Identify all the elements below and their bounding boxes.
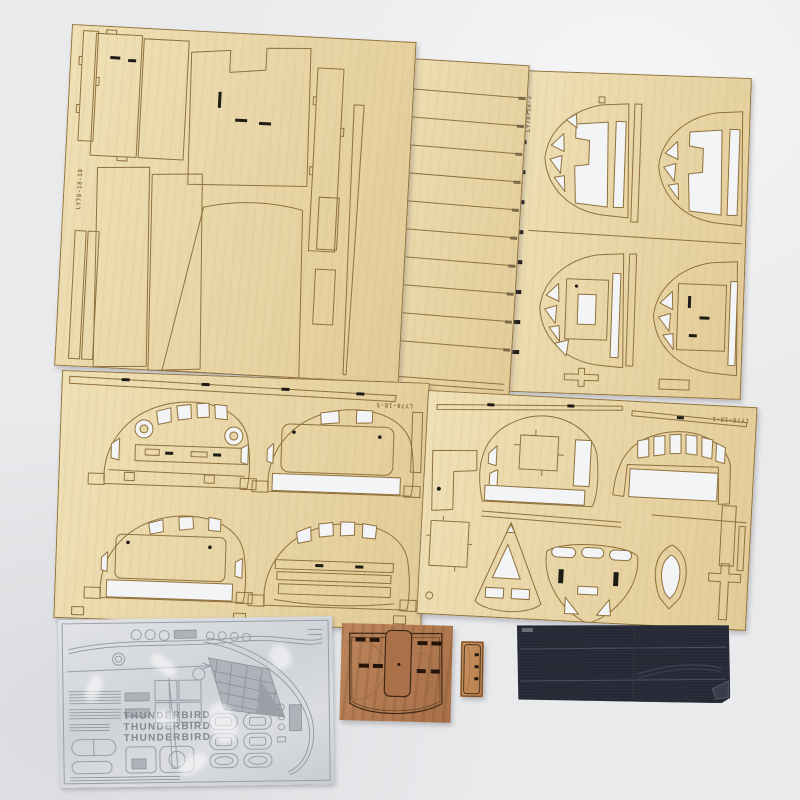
black-sheet-cuts <box>516 623 731 703</box>
small-wood-cuts <box>460 641 484 697</box>
plywood-sheet-body-panels: LY78-18-10 <box>54 24 416 384</box>
hull-former <box>543 542 639 626</box>
dome-former-rails <box>248 519 419 612</box>
former-cuts-right: LY78-18-1 <box>416 390 757 631</box>
rib-frame-framed <box>538 251 627 368</box>
windshield-former <box>613 428 734 505</box>
rib-frame-framed <box>652 259 741 376</box>
dark-wood-cuts <box>339 623 453 723</box>
small-wood-piece <box>460 641 484 697</box>
sheet-code: LY78-18-5 <box>376 401 413 409</box>
rib-frame-open <box>543 95 632 218</box>
rect-panels <box>89 29 315 190</box>
sheet-code: LY78-18-1 <box>712 415 749 424</box>
rib-frame-cuts: LY78-18-2 <box>509 70 752 400</box>
lower-panels <box>87 165 309 379</box>
kit-photo-scene: LY78-18-10 <box>0 0 800 800</box>
big-former <box>478 413 601 507</box>
sprue-bar <box>528 230 742 243</box>
plywood-sheet-formers-left: LY78-18-5 <box>53 370 429 631</box>
dome-former-window <box>252 406 423 497</box>
body-panels-cuts: LY78-18-10 <box>54 24 416 384</box>
sheet-code: LY78-18-10 <box>75 168 84 209</box>
triangle-former <box>475 521 546 613</box>
brand-text: THUNDERBIRD <box>124 732 212 744</box>
teardrop-part <box>653 544 687 610</box>
chrome-decal-sheet: THUNDERBIRD THUNDERBIRD THUNDERBIRD <box>58 616 334 788</box>
plywood-sheet-formers-right: LY78-18-1 <box>416 390 757 631</box>
small-cross-parts <box>564 102 699 390</box>
sheet-mark <box>522 628 533 632</box>
former-cuts-left: LY78-18-5 <box>53 370 429 631</box>
plywood-sheet-rib-frames: LY78-18-2 <box>509 70 752 400</box>
rib-frame-open <box>657 109 746 226</box>
dome-former-window <box>84 513 255 604</box>
black-foam-sheet <box>516 623 731 703</box>
dark-wood-sheet <box>339 623 453 723</box>
curled-corner <box>712 681 728 699</box>
dome-former-circles <box>88 399 259 490</box>
top-spars <box>437 397 747 427</box>
edge-strips <box>64 30 110 359</box>
oval-decals-left <box>70 738 181 781</box>
